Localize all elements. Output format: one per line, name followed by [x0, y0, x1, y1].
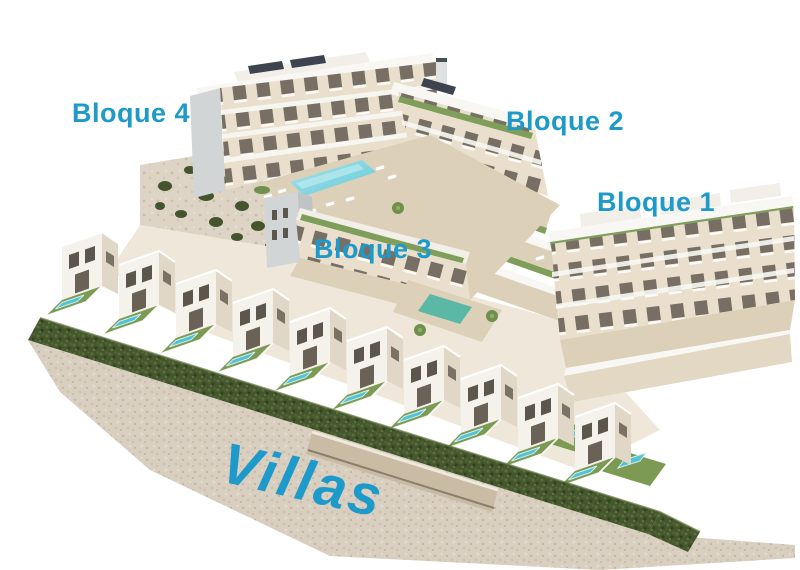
label-bloque-3: Bloque 3: [314, 234, 432, 265]
label-bloque-2: Bloque 2: [506, 106, 624, 137]
bloque-3-tower: [264, 192, 301, 268]
label-bloque-1: Bloque 1: [597, 187, 715, 218]
render-image: Bloque 4 Bloque 2 Bloque 1 Bloque 3 Vill…: [0, 0, 800, 570]
label-bloque-4: Bloque 4: [72, 98, 190, 129]
development-render: [0, 0, 800, 570]
